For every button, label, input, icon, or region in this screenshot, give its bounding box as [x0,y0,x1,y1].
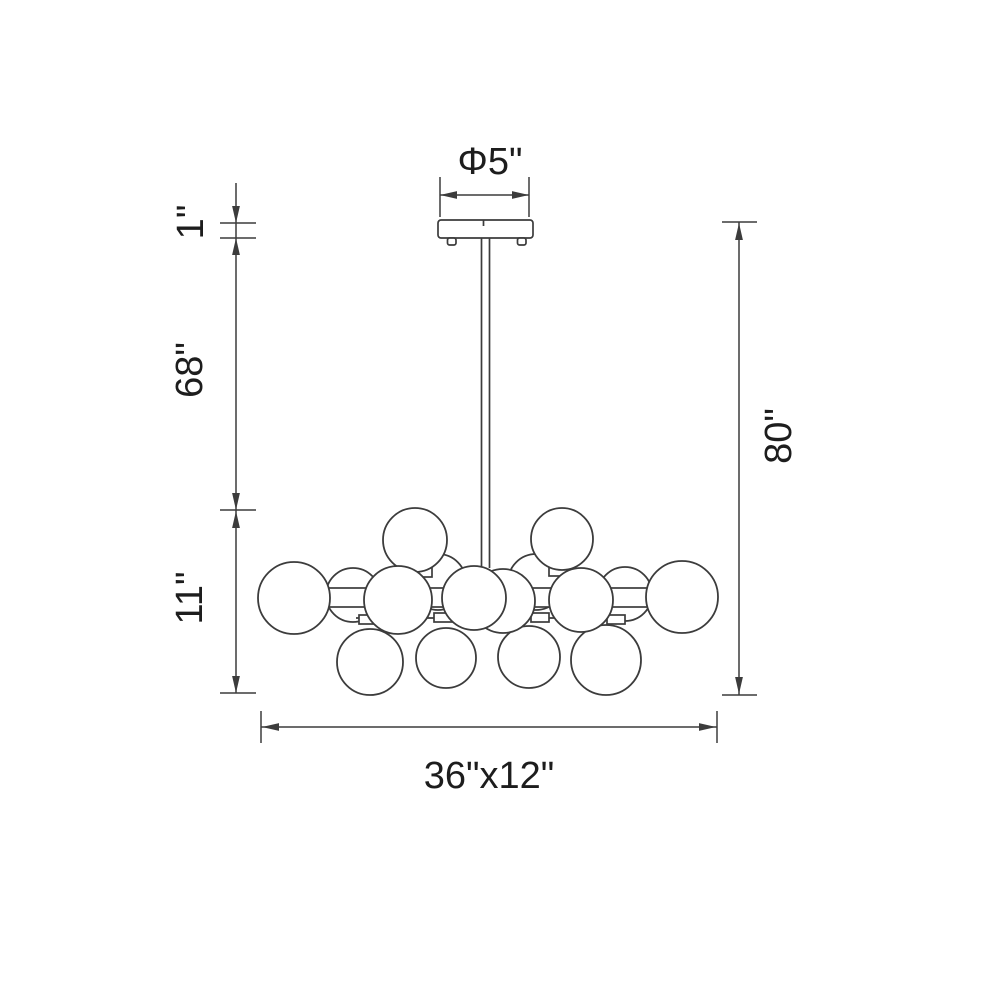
dim-label-fixture-dimensions: 36"x12" [424,757,555,795]
diagram-canvas: Φ5" 1" 68" 11" 80" 36"x12" [0,0,1000,1000]
dimension-arrowhead [232,493,240,510]
glass-globe-front [549,568,613,632]
dimension-arrowhead [232,206,240,223]
dim-label-canopy-height: 1" [172,205,210,240]
dimension-arrowhead [232,676,240,693]
dimension-left-stack [220,183,256,693]
globe-tab [607,615,625,624]
dimension-arrowhead [440,191,457,199]
dimension-arrowhead [232,511,240,528]
dimension-arrowhead [232,238,240,255]
canopy-foot [448,238,457,245]
dim-label-canopy-diameter: Φ5" [458,143,523,181]
dim-label-rod-length: 68" [171,342,209,398]
dimension-arrowhead [735,223,743,240]
glass-globe-top [531,508,593,570]
glass-globe-front [442,566,506,630]
glass-globe-bottom [416,628,476,688]
dimension-fixture-width [261,711,717,743]
glass-globe-bottom [571,625,641,695]
dimension-arrowhead [699,723,716,731]
glass-globe-top [383,508,447,572]
dim-label-fixture-height: 11" [171,572,209,625]
dimension-arrowhead [735,677,743,694]
glass-globe-bottom [498,626,560,688]
glass-globe-bottom [337,629,403,695]
dimension-arrowhead [262,723,279,731]
globe-tab [531,613,549,622]
glass-globe-front [364,566,432,634]
dimension-arrowhead [512,191,529,199]
dim-label-overall-height: 80" [760,408,798,464]
dimension-overall-height [722,222,757,695]
glass-globe-front [646,561,718,633]
dimension-canopy-diameter [440,177,529,217]
glass-globe-front [258,562,330,634]
canopy-foot [518,238,527,245]
hanging-rod [482,238,490,568]
